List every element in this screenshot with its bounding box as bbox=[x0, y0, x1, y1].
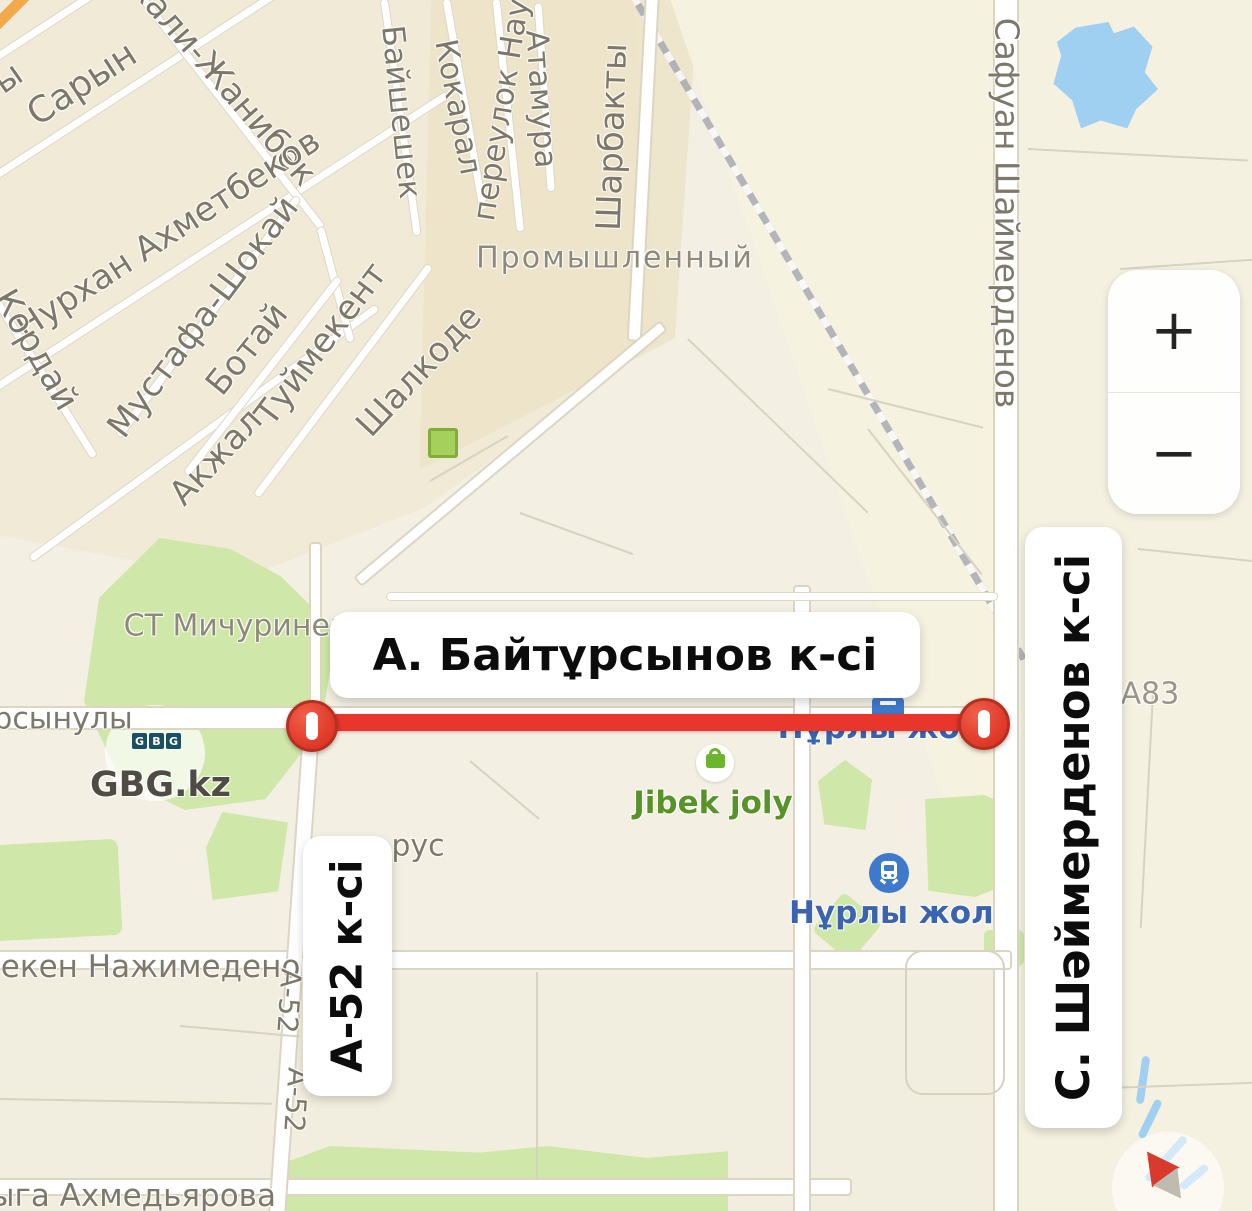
cross-street-callout-left: А-52 к-сі bbox=[303, 836, 392, 1096]
street-label-rus: рус bbox=[391, 829, 444, 864]
zoom-in-button[interactable]: + bbox=[1108, 270, 1240, 392]
path bbox=[469, 760, 539, 819]
closure-bar bbox=[978, 710, 990, 738]
path bbox=[520, 512, 633, 555]
path bbox=[536, 972, 538, 1180]
train-roof bbox=[880, 701, 896, 705]
gbg-logo-icon[interactable]: GBG bbox=[132, 733, 181, 749]
cross-street-callout-right-text: С. Шәймерденов к-сі bbox=[1047, 554, 1100, 1101]
zoom-out-button[interactable]: − bbox=[1108, 392, 1240, 515]
district-label-promyshlenny: Промышленный bbox=[476, 241, 754, 276]
nurly-zhol-station-label[interactable]: Нұрлы жол bbox=[789, 895, 989, 931]
train-wheel bbox=[884, 874, 887, 877]
road-closure-marker-right[interactable] bbox=[958, 698, 1010, 750]
closed-road-segment[interactable] bbox=[306, 714, 990, 731]
zoom-control: + − bbox=[1108, 270, 1240, 514]
train-wheel bbox=[891, 874, 894, 877]
park-area bbox=[818, 760, 872, 830]
train-leg bbox=[880, 878, 887, 884]
closure-street-callout: А. Байтұрсынов к-сі bbox=[330, 612, 920, 698]
gbg-site-label[interactable]: GBG.kz bbox=[58, 765, 263, 805]
street-label-akhmedyarova: ыга Ахмедьярова bbox=[0, 1178, 276, 1211]
train-leg bbox=[892, 878, 899, 884]
park-area bbox=[206, 812, 288, 900]
jibek-joly-label[interactable]: Jibek joly bbox=[613, 785, 813, 821]
service-loop-road bbox=[905, 950, 1005, 1095]
train-station-icon[interactable] bbox=[869, 853, 909, 893]
park-area bbox=[0, 839, 122, 942]
road-number-a83: А83 bbox=[1121, 677, 1180, 712]
closure-bar bbox=[306, 712, 318, 740]
street-label-sharbakty: Шарбакты bbox=[589, 42, 636, 231]
garden-square bbox=[428, 428, 458, 458]
bag-body bbox=[706, 754, 725, 768]
gbg-letter: G bbox=[132, 733, 147, 749]
gbg-letter: B bbox=[149, 733, 164, 749]
cross-street-callout-left-text: А-52 к-сі bbox=[323, 859, 373, 1072]
cross-street-callout-right: С. Шәймерденов к-сі bbox=[1025, 527, 1122, 1128]
district-label-michurinets: СТ Мичуринец bbox=[124, 609, 351, 644]
road-closure-marker-left[interactable] bbox=[286, 700, 338, 752]
shopping-bag-icon[interactable] bbox=[696, 744, 734, 782]
map-canvas[interactable]: ы Сарын кали-Жанибек Нурхан Ахметбеков К… bbox=[0, 0, 1252, 1211]
gbg-letter: G bbox=[166, 733, 181, 749]
road-service bbox=[386, 592, 998, 601]
street-label-safuan: Сафуан Шаймерденов bbox=[988, 18, 1027, 409]
train-window bbox=[884, 865, 894, 871]
closure-street-callout-text: А. Байтұрсынов к-сі bbox=[373, 630, 878, 681]
street-label-nazhimedenov: мекен Нажимеденов bbox=[0, 949, 319, 985]
street-label-ursynuly: рсынулы bbox=[0, 702, 133, 737]
